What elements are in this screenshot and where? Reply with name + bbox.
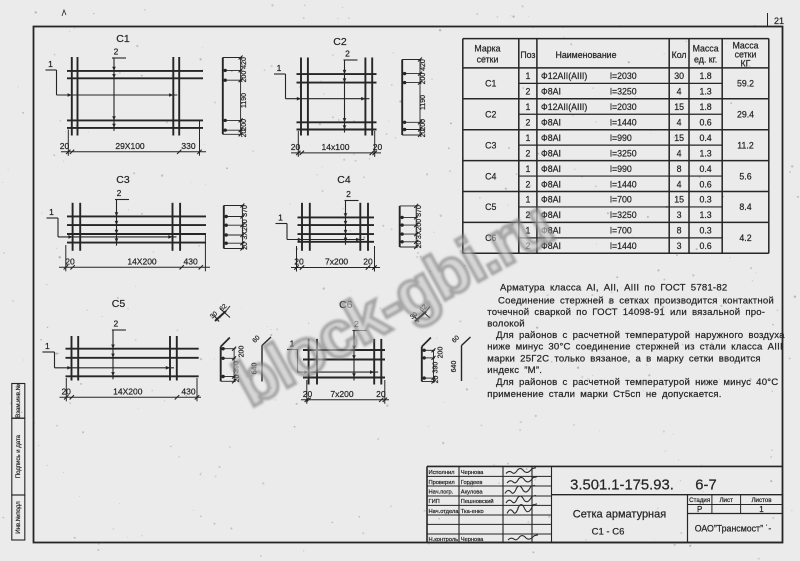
svg-text:2: 2: [117, 188, 122, 198]
svg-text:20: 20: [376, 389, 386, 399]
svg-text:1: 1: [759, 505, 764, 514]
svg-text:1: 1: [525, 71, 530, 81]
svg-text:1: 1: [525, 102, 530, 112]
svg-text:Кол: Кол: [672, 50, 687, 60]
svg-text:1190: 1190: [420, 95, 427, 110]
svg-text:430: 430: [184, 257, 198, 267]
svg-text:4: 4: [677, 87, 682, 97]
svg-text:Акулова: Акулова: [461, 490, 484, 496]
svg-text:3X200: 3X200: [416, 219, 423, 239]
svg-text:Ф8АI: Ф8АI: [541, 148, 561, 158]
svg-text:ед. кг.: ед. кг.: [694, 55, 717, 65]
svg-text:30: 30: [674, 71, 684, 81]
svg-text:Проверил: Проверил: [429, 480, 455, 486]
svg-text:0.4: 0.4: [699, 164, 711, 174]
svg-text:Нач.отдела: Нач.отдела: [429, 509, 460, 515]
svg-text:Взам.инв.№: Взам.инв.№: [15, 384, 22, 418]
svg-text:370: 370: [242, 205, 249, 217]
svg-text:Лист: Лист: [719, 497, 733, 504]
svg-text:Р: Р: [697, 505, 702, 514]
svg-text:Марка: Марка: [474, 44, 500, 54]
svg-text:2: 2: [525, 87, 530, 97]
svg-text:Ф8АI: Ф8АI: [541, 133, 561, 143]
svg-text:15: 15: [674, 195, 684, 205]
svg-text:l=1440: l=1440: [610, 241, 637, 251]
svg-text:2: 2: [345, 49, 350, 59]
svg-text:С1 - С6: С1 - С6: [592, 527, 625, 538]
svg-text:1: 1: [525, 133, 530, 143]
svg-text:1.3: 1.3: [699, 87, 711, 97]
svg-text:0.6: 0.6: [699, 117, 711, 127]
svg-text:1: 1: [525, 164, 530, 174]
svg-text:1.3: 1.3: [699, 148, 711, 158]
svg-text:Пешновский: Пешновский: [461, 498, 494, 505]
svg-text:8.4: 8.4: [739, 202, 751, 212]
svg-text:8: 8: [677, 164, 682, 174]
svg-text:l=2030: l=2030: [610, 71, 637, 81]
svg-text:2: 2: [525, 148, 530, 158]
svg-text:1190: 1190: [241, 93, 248, 108]
svg-text:Подпись и дата: Подпись и дата: [16, 434, 22, 478]
svg-text:4.2: 4.2: [739, 233, 751, 243]
svg-text:1: 1: [45, 341, 50, 351]
svg-text:Стадия: Стадия: [689, 497, 710, 504]
svg-text:15: 15: [674, 102, 684, 112]
svg-text:точечной сваркой по ГОСТ 14098: точечной сваркой по ГОСТ 14098-91 или вя…: [487, 307, 765, 318]
svg-text:59.2: 59.2: [737, 79, 754, 89]
svg-text:14x100: 14x100: [322, 142, 350, 152]
svg-text:1.8: 1.8: [699, 102, 711, 112]
svg-text:l=700: l=700: [610, 195, 632, 205]
svg-text:5.6: 5.6: [739, 171, 751, 181]
svg-text:Инв.№подл: Инв.№подл: [15, 501, 22, 534]
svg-text:индекс ”М”.: индекс ”М”.: [487, 365, 542, 376]
svg-text:8: 8: [677, 226, 682, 236]
svg-text:Ф8АI: Ф8АI: [541, 117, 561, 127]
svg-text:1: 1: [49, 207, 54, 217]
svg-text:C1: C1: [116, 33, 130, 45]
svg-text:ОАО”Трансмост” ˙-: ОАО”Трансмост” ˙-: [695, 524, 772, 534]
svg-text:ниже минус 30°С соединение сте: ниже минус 30°С соединение стержней из с…: [487, 341, 783, 352]
svg-text:4: 4: [677, 148, 682, 158]
svg-text:0.6: 0.6: [699, 241, 711, 251]
svg-text:20: 20: [373, 142, 383, 152]
svg-text:l=3250: l=3250: [610, 87, 637, 97]
svg-text:КГ: КГ: [741, 59, 751, 69]
svg-text:C2: C2: [333, 36, 347, 48]
svg-text:С2: С2: [485, 109, 496, 119]
svg-text:2: 2: [114, 319, 119, 329]
svg-text:Масса: Масса: [693, 44, 719, 54]
svg-text:20: 20: [294, 257, 304, 267]
svg-text:20: 20: [433, 376, 440, 384]
svg-text:3: 3: [677, 210, 682, 220]
svg-text:Исполнил: Исполнил: [429, 470, 455, 476]
svg-text:С3: С3: [485, 140, 496, 150]
svg-text:l=3250: l=3250: [610, 148, 637, 158]
svg-text:7x200: 7x200: [325, 257, 348, 267]
svg-text:C3: C3: [116, 174, 130, 186]
svg-text:l=1440: l=1440: [610, 117, 637, 127]
svg-text:0.6: 0.6: [699, 179, 711, 189]
svg-text:3X200: 3X200: [242, 219, 249, 239]
svg-text:0.3: 0.3: [699, 195, 711, 205]
svg-text:l=700: l=700: [610, 226, 632, 236]
svg-text:330: 330: [181, 141, 195, 151]
svg-text:390: 390: [433, 362, 440, 374]
svg-text:15: 15: [674, 133, 684, 143]
svg-text:21: 21: [774, 16, 784, 26]
svg-text:20: 20: [60, 141, 70, 151]
svg-text:430: 430: [181, 387, 195, 397]
svg-text:1: 1: [278, 213, 283, 223]
svg-text:0.3: 0.3: [699, 226, 711, 236]
svg-text:4: 4: [677, 117, 682, 127]
svg-text:20: 20: [420, 130, 427, 138]
svg-text:20: 20: [241, 130, 248, 138]
svg-text:11.2: 11.2: [737, 140, 754, 150]
svg-text:4: 4: [677, 179, 682, 189]
svg-text:Ф12АII(АIII): Ф12АII(АIII): [541, 71, 587, 81]
svg-text:C5: C5: [112, 298, 126, 310]
svg-text:14X200: 14X200: [127, 257, 157, 267]
svg-text:Ф8АI: Ф8АI: [541, 179, 561, 189]
svg-text:l=2030: l=2030: [610, 102, 637, 112]
svg-text:l=990: l=990: [610, 164, 632, 174]
svg-text:20: 20: [65, 257, 75, 267]
svg-text:20: 20: [242, 242, 249, 250]
svg-text:2: 2: [346, 189, 351, 199]
svg-text:3: 3: [677, 241, 682, 251]
svg-text:Сетка арматурная: Сетка арматурная: [573, 509, 666, 521]
svg-text:Чернова: Чернова: [461, 537, 484, 543]
svg-text:370: 370: [416, 205, 423, 217]
svg-text:640: 640: [451, 361, 458, 373]
svg-text:Н.контроль: Н.контроль: [429, 537, 459, 543]
svg-text:l=990: l=990: [610, 133, 632, 143]
svg-text:С4: С4: [485, 171, 496, 181]
svg-text:марки 25Г2С только вязаное, а: марки 25Г2С только вязаное, а в марку се…: [487, 354, 761, 365]
svg-text:сетки: сетки: [477, 55, 499, 65]
svg-text:Чернова: Чернова: [461, 470, 484, 476]
svg-text:200: 200: [241, 71, 248, 83]
svg-text:29.4: 29.4: [737, 109, 754, 119]
svg-text:применение стали марки Ст5сп н: применение стали марки Ст5сп не допускае…: [487, 389, 721, 400]
svg-text:29X100: 29X100: [115, 141, 145, 151]
svg-text:Ф8АI: Ф8АI: [541, 164, 561, 174]
svg-text:Гордеев: Гордеев: [461, 480, 483, 486]
svg-text:Тка-енко: Тка-енко: [461, 509, 484, 515]
svg-text:Ф12АII(АIII): Ф12АII(АIII): [541, 102, 587, 112]
svg-text:2: 2: [525, 117, 530, 127]
svg-text:Листов: Листов: [751, 497, 772, 504]
svg-text:20: 20: [291, 142, 301, 152]
svg-text:Для районов с расчетной темпер: Для районов с расчетной температурой ниж…: [496, 377, 778, 388]
svg-text:2: 2: [114, 47, 119, 57]
svg-text:Соединение стержней в сетках п: Соединение стержней в сетках производитс…: [498, 295, 774, 306]
svg-text:1.8: 1.8: [699, 71, 711, 81]
svg-text:20: 20: [61, 387, 71, 397]
svg-text:6-7: 6-7: [695, 478, 716, 494]
svg-text:420: 420: [420, 59, 427, 71]
svg-text:С1: С1: [485, 79, 496, 89]
svg-text:200: 200: [438, 347, 445, 359]
svg-text:l=1440: l=1440: [610, 179, 637, 189]
svg-text:волокой: волокой: [487, 319, 525, 330]
svg-text:Нач.погр.: Нач.погр.: [429, 490, 454, 496]
svg-text:200: 200: [420, 73, 427, 85]
svg-text:Ф8АI: Ф8АI: [541, 195, 561, 205]
svg-text:20: 20: [363, 257, 373, 267]
svg-text:1: 1: [277, 63, 282, 73]
svg-text:420: 420: [241, 57, 248, 69]
svg-text:3.501.1-175.93.: 3.501.1-175.93.: [570, 478, 674, 494]
svg-text:7x200: 7x200: [330, 389, 353, 399]
svg-text:14X200: 14X200: [113, 387, 143, 397]
svg-text:200: 200: [241, 119, 248, 131]
svg-text:Поз: Поз: [520, 50, 535, 60]
svg-text:0.4: 0.4: [699, 133, 711, 143]
svg-text:Ф8АI: Ф8АI: [541, 87, 561, 97]
svg-text:Наименование: Наименование: [556, 50, 617, 60]
svg-text:1.3: 1.3: [699, 210, 711, 220]
svg-text:1: 1: [48, 59, 53, 69]
svg-text:ГИП: ГИП: [429, 499, 440, 505]
svg-text:Арматура класса АI, АII, АIII: Арматура класса АI, АII, АIII по ГОСТ 57…: [500, 282, 727, 293]
svg-text:C4: C4: [337, 174, 351, 186]
svg-text:l=3250: l=3250: [610, 210, 637, 220]
svg-text:Для районов с расчетной темпер: Для районов с расчетной температурой нар…: [496, 330, 785, 341]
svg-text:200: 200: [420, 119, 427, 131]
